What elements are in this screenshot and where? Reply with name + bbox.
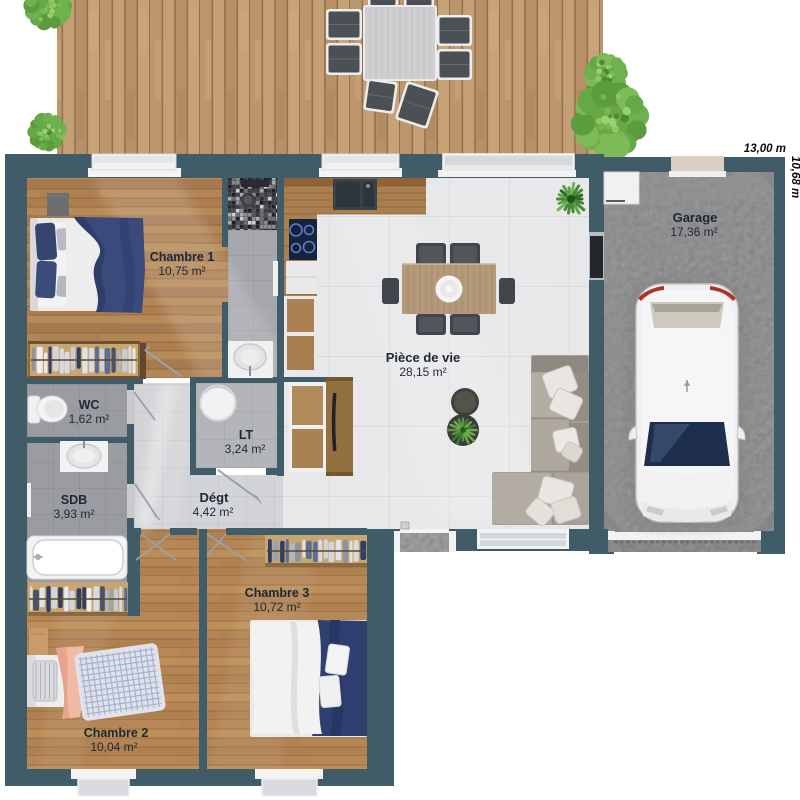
svg-text:Chambre 3: Chambre 3	[245, 586, 310, 600]
svg-text:WC: WC	[79, 398, 100, 412]
svg-text:13,00 m: 13,00 m	[744, 143, 786, 155]
svg-text:1,62 m²: 1,62 m²	[69, 412, 110, 426]
svg-text:3,93 m²: 3,93 m²	[54, 507, 95, 521]
svg-text:17,36 m²: 17,36 m²	[670, 225, 717, 239]
svg-text:Chambre 1: Chambre 1	[150, 250, 215, 264]
svg-text:4,42 m²: 4,42 m²	[193, 505, 234, 519]
svg-text:28,15 m²: 28,15 m²	[399, 365, 446, 379]
svg-text:Dégt: Dégt	[200, 490, 230, 505]
svg-text:10,04 m²: 10,04 m²	[90, 740, 137, 754]
svg-text:LT: LT	[239, 428, 254, 442]
svg-text:3,24 m²: 3,24 m²	[225, 442, 266, 456]
svg-text:10,72 m²: 10,72 m²	[253, 600, 300, 614]
svg-text:Pièce de vie: Pièce de vie	[386, 350, 460, 365]
svg-text:Chambre 2: Chambre 2	[84, 726, 149, 740]
svg-text:10,68 m: 10,68 m	[789, 156, 800, 198]
svg-text:SDB: SDB	[61, 493, 87, 507]
svg-text:Garage: Garage	[673, 210, 718, 225]
svg-text:10,75 m²: 10,75 m²	[158, 264, 205, 278]
